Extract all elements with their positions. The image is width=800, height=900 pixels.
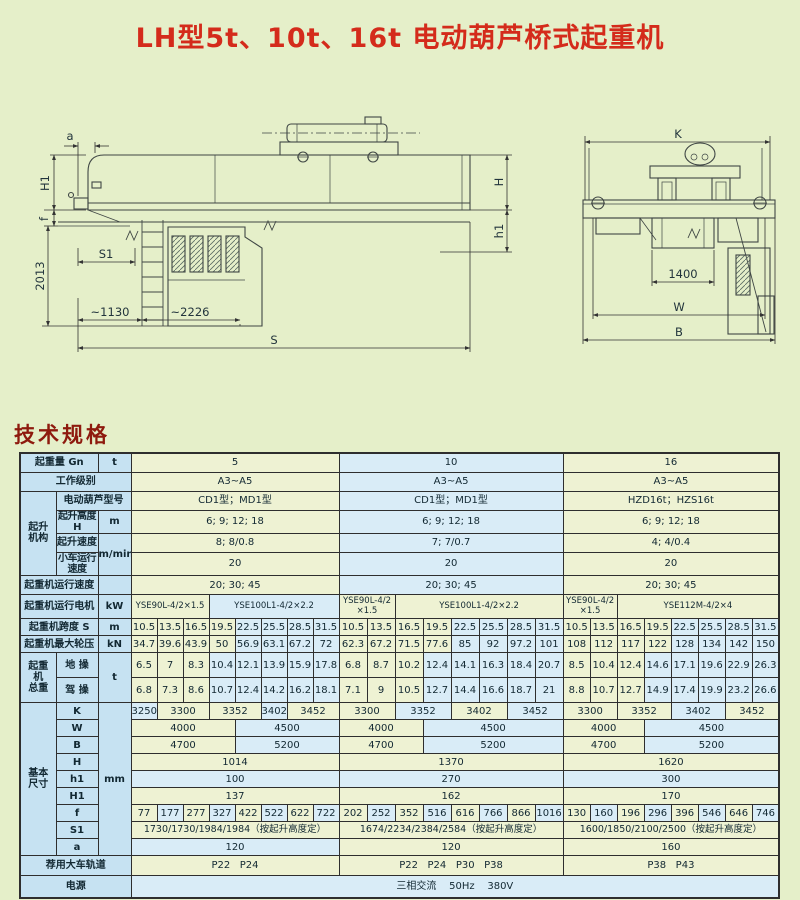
data-cell: 21	[535, 678, 563, 703]
data-cell: A3~A5	[339, 472, 563, 491]
data-cell: 128	[671, 636, 698, 653]
data-cell: 3452	[507, 703, 563, 720]
data-cell: 296	[644, 805, 671, 822]
data-cell: 3300	[563, 703, 617, 720]
data-cell: 546	[698, 805, 725, 822]
row-dim-a: a120120160	[20, 839, 779, 856]
dim-w-label: W	[673, 300, 684, 314]
data-cell: 3352	[395, 703, 451, 720]
data-cell: 8.6	[183, 678, 209, 703]
row-dim-w: W400045004000450040004500	[20, 720, 779, 737]
spec-table-body: 起重量 Gnt51016工作级别A3~A5A3~A5A3~A5起升 机构电动葫芦…	[20, 453, 779, 898]
data-cell: 10.5	[131, 619, 157, 636]
data-cell: 17.4	[671, 678, 698, 703]
data-cell: 10.5	[339, 619, 367, 636]
data-cell: 19.6	[698, 653, 725, 678]
data-cell: 277	[183, 805, 209, 822]
data-cell: 766	[479, 805, 507, 822]
row-weight-ground-op: 起重 机 总重地 操t6.578.310.412.113.915.917.86.…	[20, 653, 779, 678]
data-cell: 72	[313, 636, 339, 653]
data-cell: 3300	[157, 703, 209, 720]
data-cell: 202	[339, 805, 367, 822]
data-cell: 16.5	[395, 619, 423, 636]
data-cell: 20	[563, 552, 779, 575]
data-cell: 4500	[235, 720, 339, 737]
dim-1400-label: 1400	[668, 267, 697, 281]
data-cell: 327	[209, 805, 235, 822]
unit-cell: t	[98, 653, 131, 703]
data-cell: 13.5	[590, 619, 617, 636]
data-cell: 22.5	[451, 619, 479, 636]
data-cell: 352	[395, 805, 423, 822]
row-label-cell: 地 操	[56, 653, 98, 678]
row-label-cell: S1	[56, 822, 98, 839]
data-cell: 3402	[261, 703, 287, 720]
data-cell: 10.4	[209, 653, 235, 678]
row-label-cell: 工作级别	[20, 472, 131, 491]
data-cell: 31.5	[752, 619, 779, 636]
data-cell: 122	[644, 636, 671, 653]
data-cell: 16.5	[617, 619, 644, 636]
data-cell: 170	[563, 788, 779, 805]
data-cell: 4000	[339, 720, 423, 737]
row-label-cell: 起升速度	[56, 533, 98, 552]
data-cell: 13.5	[157, 619, 183, 636]
ladder	[142, 220, 163, 326]
section-mark	[126, 231, 138, 240]
data-cell: 4700	[131, 737, 235, 754]
row-label-cell: 起重机运行速度	[20, 576, 98, 595]
data-cell: 97.2	[507, 636, 535, 653]
data-cell: 62.3	[339, 636, 367, 653]
data-cell: 39.6	[157, 636, 183, 653]
row-lifting-capacity: 起重量 Gnt51016	[20, 453, 779, 472]
row-label-cell: B	[56, 737, 98, 754]
row-label-cell: f	[56, 805, 98, 822]
data-cell: 19.5	[644, 619, 671, 636]
data-cell: 31.5	[535, 619, 563, 636]
data-cell: 100	[131, 771, 339, 788]
spec-table: 起重量 Gnt51016工作级别A3~A5A3~A5A3~A5起升 机构电动葫芦…	[19, 452, 780, 899]
dim-k-label: K	[674, 127, 682, 141]
data-cell: 22.5	[235, 619, 261, 636]
dim-a-label: a	[66, 129, 73, 143]
data-cell: 1730/1730/1984/1984（按起升高度定）	[131, 822, 339, 839]
data-cell: 3250	[131, 703, 157, 720]
section-mark	[688, 229, 700, 238]
dim-2013-label: 2013	[33, 261, 47, 290]
data-cell: 1016	[535, 805, 563, 822]
data-cell: 28.5	[725, 619, 752, 636]
side-view-dim-labels: a H1 f 2013 S1 ~1130 ~2226 S H h1	[33, 129, 506, 347]
data-cell: 622	[287, 805, 313, 822]
data-cell: 12.7	[423, 678, 451, 703]
row-dim-h: H101413701620	[20, 754, 779, 771]
section-heading: 技术规格	[14, 419, 110, 449]
data-cell: 14.1	[451, 653, 479, 678]
data-cell: 117	[617, 636, 644, 653]
data-cell: 12.4	[235, 678, 261, 703]
data-cell: 120	[339, 839, 563, 856]
technical-drawings: a H1 f 2013 S1 ~1130 ~2226 S H h1	[0, 100, 800, 410]
data-cell: 67.2	[367, 636, 395, 653]
data-cell: 16	[563, 453, 779, 472]
data-cell: 16.3	[479, 653, 507, 678]
row-dim-h1-upper: H1137162170	[20, 788, 779, 805]
data-cell: 3452	[725, 703, 779, 720]
data-cell: 12.4	[617, 653, 644, 678]
data-cell: 50	[209, 636, 235, 653]
dim-b-label: B	[675, 325, 683, 339]
row-label-cell: 电动葫芦型号	[56, 491, 131, 510]
data-cell: 8.7	[367, 653, 395, 678]
data-cell: 160	[563, 839, 779, 856]
data-cell: P22 P24	[131, 856, 339, 876]
row-label-cell: W	[56, 720, 98, 737]
data-cell: HZD16t；HZS16t	[563, 491, 779, 510]
data-cell: 1370	[339, 754, 563, 771]
data-cell: 18.7	[507, 678, 535, 703]
data-cell: 77.6	[423, 636, 451, 653]
data-cell: 3402	[671, 703, 725, 720]
data-cell: 3352	[617, 703, 671, 720]
data-cell: 6; 9; 12; 18	[339, 510, 563, 533]
row-dim-b: B470052004700520047005200	[20, 737, 779, 754]
data-cell: 1620	[563, 754, 779, 771]
data-cell: 142	[725, 636, 752, 653]
unit-cell	[98, 576, 131, 595]
unit-cell: m/min	[98, 533, 131, 575]
data-cell: 56.9	[235, 636, 261, 653]
unit-cell: t	[98, 453, 131, 472]
data-cell: 300	[563, 771, 779, 788]
row-label-cell: H	[56, 754, 98, 771]
data-cell: 三相交流 50Hz 380V	[131, 876, 779, 898]
data-cell: 6.8	[339, 653, 367, 678]
data-cell: 134	[698, 636, 725, 653]
data-cell: 18.4	[507, 653, 535, 678]
row-label-cell: 小车运行速度	[56, 552, 98, 575]
data-cell: 19.5	[209, 619, 235, 636]
data-cell: 252	[367, 805, 395, 822]
unit-cell: mm	[98, 703, 131, 856]
data-cell: 34.7	[131, 636, 157, 653]
row-duty-class: 工作级别A3~A5A3~A5A3~A5	[20, 472, 779, 491]
data-cell: 4700	[339, 737, 423, 754]
data-cell: 12.7	[617, 678, 644, 703]
data-cell: 4700	[563, 737, 644, 754]
data-cell: 14.4	[451, 678, 479, 703]
row-label-cell: a	[56, 839, 98, 856]
data-cell: 10	[339, 453, 563, 472]
data-cell: 6.5	[131, 653, 157, 678]
data-cell: 522	[261, 805, 287, 822]
row-label-cell: 起重机运行电机	[20, 595, 98, 619]
data-cell: 14.9	[644, 678, 671, 703]
data-cell: 16.2	[287, 678, 313, 703]
row-rail: 荐用大车轨道P22 P24P22 P24 P30 P38P38 P43	[20, 856, 779, 876]
row-crane-speed: 起重机运行速度20; 30; 4520; 30; 4520; 30; 45	[20, 576, 779, 595]
data-cell: 722	[313, 805, 339, 822]
data-cell: 1674/2234/2384/2584（按起升高度定）	[339, 822, 563, 839]
data-cell: 1014	[131, 754, 339, 771]
data-cell: YSE100L1-4/2×2.2	[209, 595, 339, 619]
data-cell: YSE112M-4/2×4	[617, 595, 779, 619]
data-cell: YSE90L-4/2 ×1.5	[563, 595, 617, 619]
data-cell: 5	[131, 453, 339, 472]
data-cell: 20; 30; 45	[131, 576, 339, 595]
data-cell: 26.6	[752, 678, 779, 703]
data-cell: 270	[339, 771, 563, 788]
data-cell: P22 P24 P30 P38	[339, 856, 563, 876]
group-label-cell: 起重 机 总重	[20, 653, 56, 703]
row-label-cell: h1	[56, 771, 98, 788]
row-trolley-speed: 小车运行速度202020	[20, 552, 779, 575]
unit-cell: kN	[98, 636, 131, 653]
row-label-cell: 起重机跨度 S	[20, 619, 98, 636]
data-cell: 8; 8/0.8	[131, 533, 339, 552]
data-cell: 10.4	[590, 653, 617, 678]
row-span: 起重机跨度 Sm10.513.516.519.522.525.528.531.5…	[20, 619, 779, 636]
data-cell: 10.7	[209, 678, 235, 703]
data-cell: 4500	[423, 720, 563, 737]
row-label-cell: H1	[56, 788, 98, 805]
data-cell: 23.2	[725, 678, 752, 703]
data-cell: 196	[617, 805, 644, 822]
data-cell: 67.2	[287, 636, 313, 653]
data-cell: 3352	[209, 703, 261, 720]
dim-h-label: H	[492, 178, 506, 187]
row-power: 电源三相交流 50Hz 380V	[20, 876, 779, 898]
data-cell: 77	[131, 805, 157, 822]
data-cell: 10.5	[563, 619, 590, 636]
row-label-cell: K	[56, 703, 98, 720]
data-cell: 20	[131, 552, 339, 575]
data-cell: 13.5	[367, 619, 395, 636]
unit-cell: kW	[98, 595, 131, 619]
data-cell: YSE90L-4/2 ×1.5	[339, 595, 395, 619]
data-cell: 137	[131, 788, 339, 805]
data-cell: 92	[479, 636, 507, 653]
trolley-hoist	[262, 117, 420, 162]
data-cell: 6.8	[131, 678, 157, 703]
row-label-cell: 起重机最大轮压	[20, 636, 98, 653]
data-cell: 17.1	[671, 653, 698, 678]
dim-f-label: f	[37, 216, 51, 221]
data-cell: 422	[235, 805, 261, 822]
dim-1130-label: ~1130	[91, 305, 130, 319]
data-cell: YSE100L1-4/2×2.2	[395, 595, 563, 619]
data-cell: 6; 9; 12; 18	[131, 510, 339, 533]
data-cell: 120	[131, 839, 339, 856]
data-cell: 31.5	[313, 619, 339, 636]
row-max-wheel-load: 起重机最大轮压kN34.739.643.95056.963.167.27262.…	[20, 636, 779, 653]
data-cell: 12.1	[235, 653, 261, 678]
data-cell: 108	[563, 636, 590, 653]
data-cell: 160	[590, 805, 617, 822]
end-buffer	[69, 182, 102, 209]
data-cell: 19.5	[423, 619, 451, 636]
data-cell: 20; 30; 45	[563, 576, 779, 595]
data-cell: 85	[451, 636, 479, 653]
data-cell: 10.2	[395, 653, 423, 678]
data-cell: 130	[563, 805, 590, 822]
data-cell: P38 P43	[563, 856, 779, 876]
data-cell: 396	[671, 805, 698, 822]
data-cell: 8.3	[183, 653, 209, 678]
data-cell: 22.9	[725, 653, 752, 678]
group-label-cell: 起升 机构	[20, 491, 56, 576]
data-cell: 10.7	[590, 678, 617, 703]
row-hoist-model: 起升 机构电动葫芦型号CD1型；MD1型CD1型；MD1型HZD16t；HZS1…	[20, 491, 779, 510]
data-cell: 43.9	[183, 636, 209, 653]
dim-2226-label: ~2226	[171, 305, 210, 319]
data-cell: YSE90L-4/2×1.5	[131, 595, 209, 619]
data-cell: 12.4	[423, 653, 451, 678]
row-dim-h1-lower: h1100270300	[20, 771, 779, 788]
data-cell: 16.6	[479, 678, 507, 703]
data-cell: 4000	[131, 720, 235, 737]
dim-s1-label: S1	[99, 247, 114, 261]
data-cell: 13.9	[261, 653, 287, 678]
data-cell: 7.3	[157, 678, 183, 703]
data-cell: 63.1	[261, 636, 287, 653]
data-cell: 616	[451, 805, 479, 822]
data-cell: 16.5	[183, 619, 209, 636]
data-cell: 112	[590, 636, 617, 653]
data-cell: 7	[157, 653, 183, 678]
data-cell: 25.5	[261, 619, 287, 636]
data-cell: 9	[367, 678, 395, 703]
data-cell: 25.5	[698, 619, 725, 636]
data-cell: 8.8	[563, 678, 590, 703]
row-travel-motor: 起重机运行电机kWYSE90L-4/2×1.5YSE100L1-4/2×2.2Y…	[20, 595, 779, 619]
data-cell: 18.1	[313, 678, 339, 703]
data-cell: 26.3	[752, 653, 779, 678]
dim-h1-upper-label: H1	[38, 175, 52, 191]
data-cell: 5200	[235, 737, 339, 754]
data-cell: 3402	[451, 703, 507, 720]
row-lifting-height: 起升高度Hm6; 9; 12; 186; 9; 12; 186; 9; 12; …	[20, 510, 779, 533]
row-dim-s1: S11730/1730/1984/1984（按起升高度定）1674/2234/2…	[20, 822, 779, 839]
row-label-cell: 起重量 Gn	[20, 453, 98, 472]
unit-cell: m	[98, 619, 131, 636]
end-view-hoist-unit	[718, 218, 774, 334]
group-label-cell: 基本 尺寸	[20, 703, 56, 856]
dim-s-label: S	[270, 333, 277, 347]
data-cell: 150	[752, 636, 779, 653]
data-cell: 5200	[644, 737, 779, 754]
end-view-dim-labels: K 1400 W B	[668, 127, 697, 339]
row-dim-k: 基本 尺寸Kmm32503300335234023452330033523402…	[20, 703, 779, 720]
data-cell: 4500	[644, 720, 779, 737]
data-cell: 20	[339, 552, 563, 575]
data-cell: A3~A5	[563, 472, 779, 491]
data-cell: 3300	[339, 703, 395, 720]
data-cell: 866	[507, 805, 535, 822]
data-cell: 746	[752, 805, 779, 822]
data-cell: 162	[339, 788, 563, 805]
data-cell: 71.5	[395, 636, 423, 653]
data-cell: 14.6	[644, 653, 671, 678]
data-cell: 20.7	[535, 653, 563, 678]
row-label-cell: 电源	[20, 876, 131, 898]
unit-cell: m	[98, 510, 131, 533]
data-cell: 8.5	[563, 653, 590, 678]
dim-h1-lower-label: h1	[492, 224, 506, 239]
data-cell: 28.5	[287, 619, 313, 636]
data-cell: 5200	[423, 737, 563, 754]
row-label-cell: 荐用大车轨道	[20, 856, 131, 876]
data-cell: 19.9	[698, 678, 725, 703]
data-cell: 22.5	[671, 619, 698, 636]
row-label-cell: 驾 操	[56, 678, 98, 703]
data-cell: 7.1	[339, 678, 367, 703]
data-cell: 4; 4/0.4	[563, 533, 779, 552]
data-cell: 646	[725, 805, 752, 822]
data-cell: 1600/1850/2100/2500（按起升高度定）	[563, 822, 779, 839]
data-cell: 516	[423, 805, 451, 822]
data-cell: 4000	[563, 720, 644, 737]
data-cell: CD1型；MD1型	[131, 491, 339, 510]
data-cell: 10.5	[395, 678, 423, 703]
data-cell: 28.5	[507, 619, 535, 636]
row-label-cell: 起升高度H	[56, 510, 98, 533]
end-view-bridge	[583, 197, 775, 248]
row-lifting-speed: 起升速度m/min8; 8/0.87; 7/0.74; 4/0.4	[20, 533, 779, 552]
data-cell: 6; 9; 12; 18	[563, 510, 779, 533]
girder	[58, 155, 470, 226]
data-cell: 17.8	[313, 653, 339, 678]
data-cell: 25.5	[479, 619, 507, 636]
data-cell: 177	[157, 805, 183, 822]
side-view-drawing	[58, 117, 470, 326]
row-dim-f: f771772773274225226227222022523525166167…	[20, 805, 779, 822]
data-cell: 7; 7/0.7	[339, 533, 563, 552]
data-cell: 3452	[287, 703, 339, 720]
end-view-trolley	[589, 143, 762, 200]
row-weight-cab-op: 驾 操6.87.38.610.712.414.216.218.17.1910.5…	[20, 678, 779, 703]
data-cell: A3~A5	[131, 472, 339, 491]
data-cell: 101	[535, 636, 563, 653]
page-title: LH型5t、10t、16t 电动葫芦桥式起重机	[0, 16, 800, 55]
data-cell: 15.9	[287, 653, 313, 678]
data-cell: 14.2	[261, 678, 287, 703]
data-cell: CD1型；MD1型	[339, 491, 563, 510]
data-cell: 20; 30; 45	[339, 576, 563, 595]
